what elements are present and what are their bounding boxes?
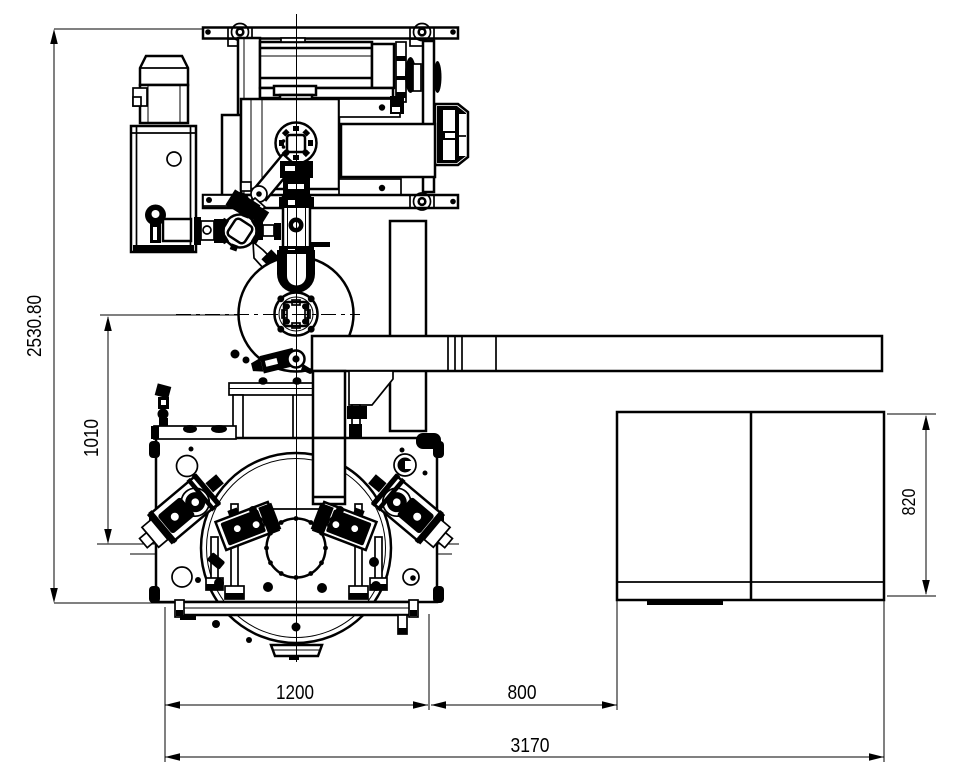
svg-text:2530.80: 2530.80 bbox=[24, 295, 46, 357]
svg-text:820: 820 bbox=[899, 489, 919, 516]
svg-text:1010: 1010 bbox=[81, 419, 103, 457]
svg-text:3170: 3170 bbox=[511, 735, 550, 757]
svg-text:1200: 1200 bbox=[276, 682, 314, 704]
svg-text:800: 800 bbox=[508, 682, 537, 704]
